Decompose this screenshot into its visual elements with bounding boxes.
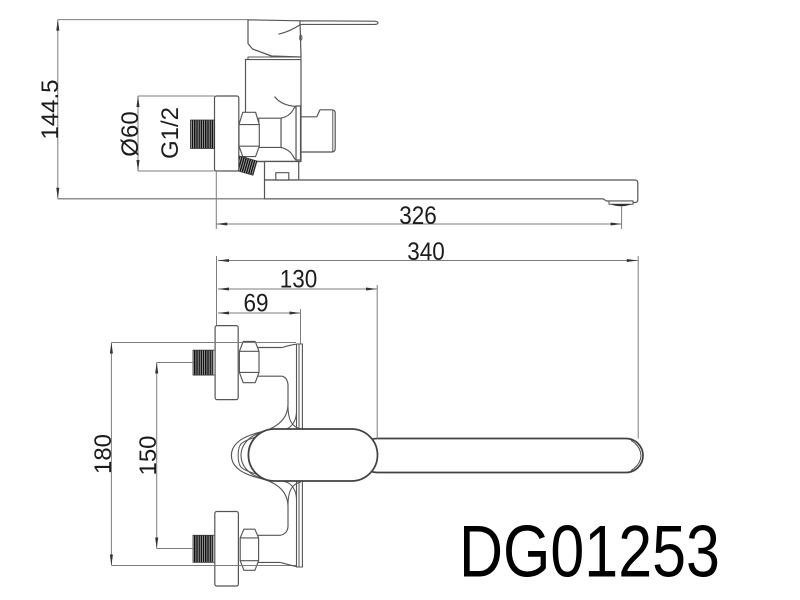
svg-text:180: 180 [90,434,117,474]
svg-text:69: 69 [243,289,268,317]
svg-text:340: 340 [407,238,445,266]
svg-text:326: 326 [399,202,437,230]
svg-text:Ø60: Ø60 [117,111,144,156]
svg-text:150: 150 [135,435,162,475]
svg-text:144.5: 144.5 [37,79,64,139]
svg-text:G1/2: G1/2 [157,107,184,159]
svg-text:130: 130 [280,265,318,293]
svg-text:DG01253: DG01253 [459,511,720,592]
